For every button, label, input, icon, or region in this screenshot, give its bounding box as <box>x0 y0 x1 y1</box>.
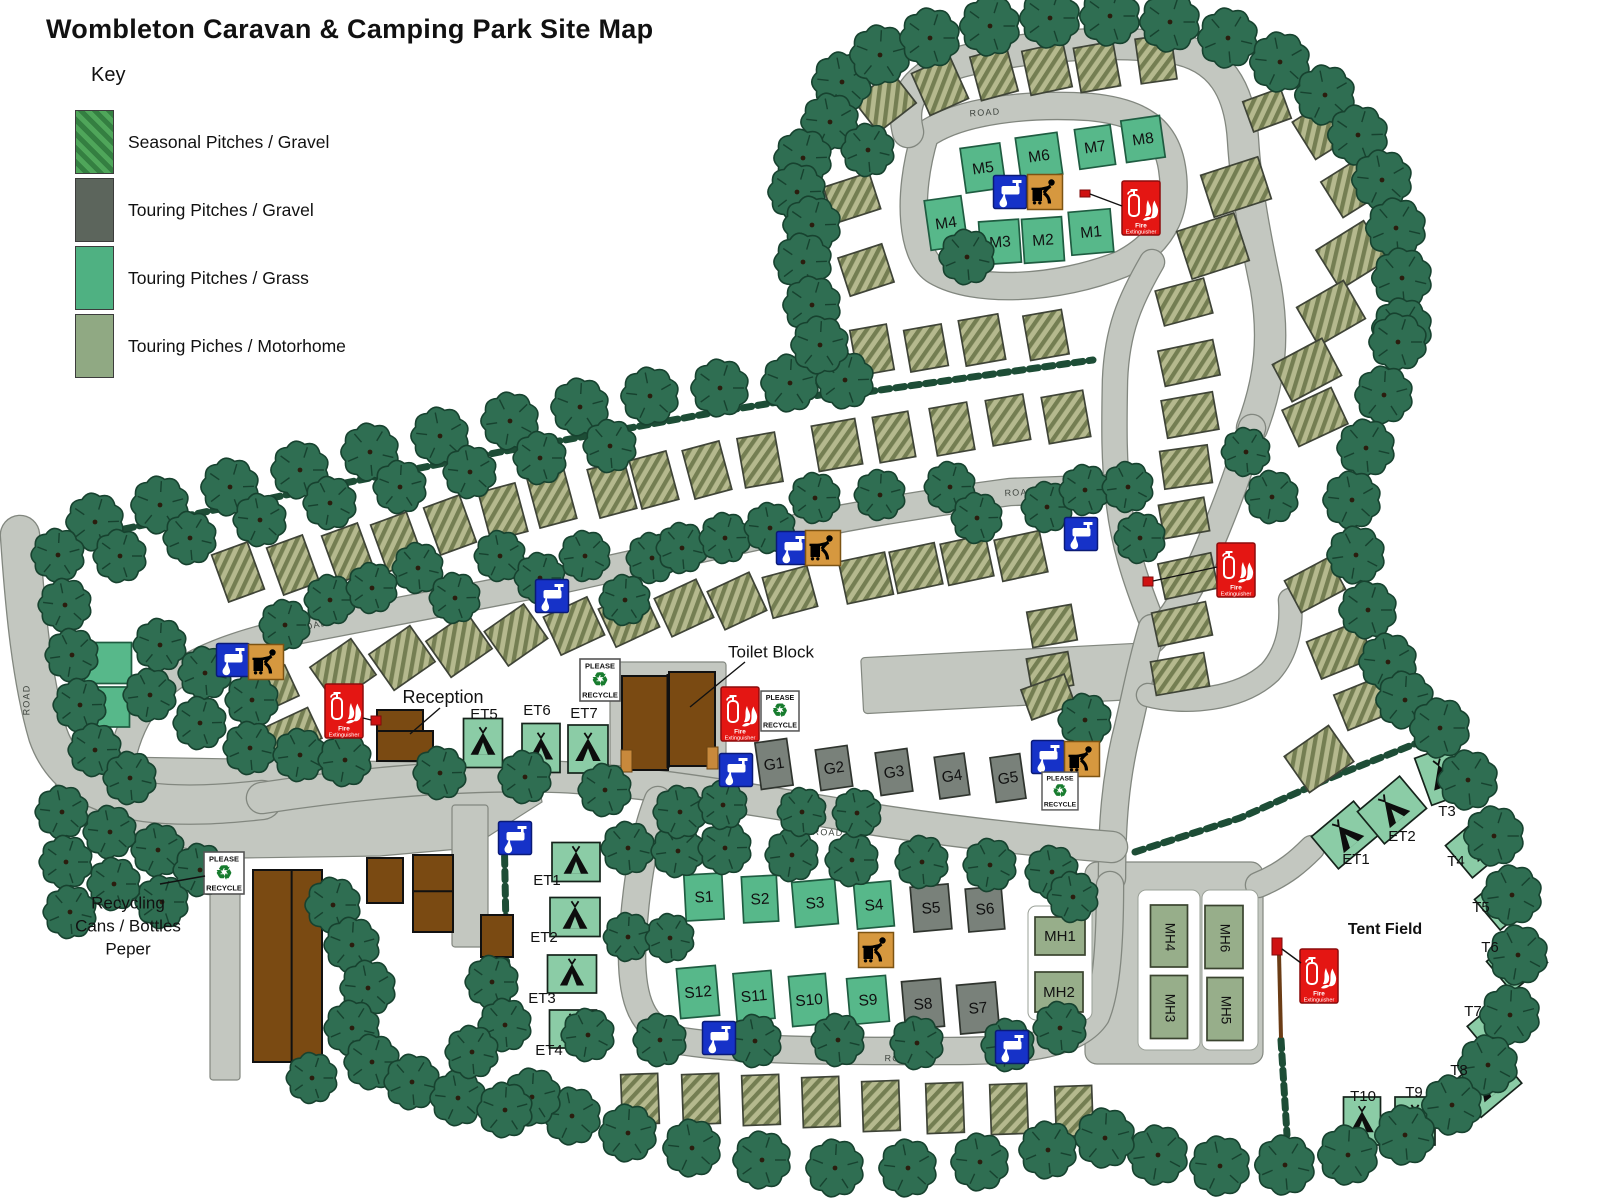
svg-text:MH4: MH4 <box>1162 923 1177 952</box>
fire-extinguisher-sign: FireExtinguisher <box>325 684 363 739</box>
svg-text:RECYCLE: RECYCLE <box>206 883 242 892</box>
pitch-seasonal <box>839 552 894 604</box>
pitch-seasonal <box>1073 41 1120 92</box>
pitch-S4: S4 <box>854 881 895 929</box>
tree <box>951 493 1001 544</box>
key-swatch-grass <box>75 246 114 310</box>
tree <box>1114 513 1164 564</box>
svg-text:S5: S5 <box>921 899 941 918</box>
pitch-seasonal <box>1041 390 1091 444</box>
tree <box>698 781 746 830</box>
tree <box>1337 419 1394 477</box>
tree <box>31 528 84 581</box>
tent-label: ET2 <box>530 929 558 946</box>
fire-extinguisher-sign: FireExtinguisher <box>1122 181 1160 236</box>
svg-text:S10: S10 <box>795 991 824 1010</box>
water-tap-icon <box>1065 518 1098 551</box>
key-item-seasonal: Seasonal Pitches / Gravel <box>75 111 346 173</box>
tree <box>443 445 496 498</box>
pitch-MH1: MH1 <box>1035 917 1085 955</box>
water-tap-icon <box>536 580 569 613</box>
tent-label: T10 <box>1350 1088 1376 1105</box>
tree <box>960 0 1019 56</box>
svg-text:G5: G5 <box>997 769 1020 789</box>
pitch-seasonal <box>904 324 949 372</box>
tree <box>1019 1121 1076 1179</box>
tree <box>45 628 98 681</box>
recycle-sign: PLEASE♻RECYCLE <box>204 852 244 894</box>
svg-text:Fire: Fire <box>1313 991 1325 998</box>
svg-text:Fire: Fire <box>1230 585 1242 592</box>
tree <box>699 513 749 564</box>
pitch-seasonal <box>707 572 766 630</box>
water-tap-icon <box>777 532 810 565</box>
tree <box>103 751 156 804</box>
pitch-seasonal <box>1027 604 1078 647</box>
tree <box>890 1016 943 1069</box>
svg-text:♻: ♻ <box>772 701 788 721</box>
tree <box>559 531 609 582</box>
tree <box>123 668 176 721</box>
tree <box>1033 1001 1086 1054</box>
pitch-M7: M7 <box>1074 125 1115 170</box>
tree <box>939 229 994 284</box>
pitch-S12: S12 <box>676 965 719 1018</box>
pitch-M1: M1 <box>1068 209 1114 255</box>
tree <box>1221 428 1269 477</box>
tree <box>413 746 466 799</box>
waste-point-icon <box>1065 742 1100 777</box>
tree <box>1255 1135 1314 1195</box>
tree <box>963 838 1016 891</box>
tree <box>498 750 551 803</box>
tent-label: T5 <box>1472 899 1490 916</box>
key-swatch-seasonal <box>75 110 114 174</box>
svg-text:S12: S12 <box>684 983 713 1002</box>
pitch-seasonal <box>682 1073 721 1124</box>
svg-text:Extinguisher: Extinguisher <box>1126 230 1157 236</box>
tree <box>133 618 186 671</box>
key-item-gravel: Touring Pitches / Gravel <box>75 179 346 241</box>
pitch-ET5 <box>464 719 503 768</box>
svg-text:♻: ♻ <box>1052 781 1067 800</box>
key-item-grass: Touring Pitches / Grass <box>75 247 346 309</box>
waste-point-icon <box>249 645 284 680</box>
tree <box>811 1013 864 1066</box>
tree <box>854 470 904 521</box>
tent-label: T8 <box>1450 1062 1468 1079</box>
road-area <box>861 642 1160 713</box>
recycle-sign: PLEASE♻RECYCLE <box>1042 772 1078 810</box>
svg-text:S11: S11 <box>740 987 768 1006</box>
label-reception: Reception <box>402 687 483 707</box>
svg-text:S8: S8 <box>913 995 933 1014</box>
pitch-MH6: MH6 <box>1205 906 1243 969</box>
svg-text:M2: M2 <box>1032 231 1055 249</box>
recycle-sign: PLEASE♻RECYCLE <box>761 691 799 731</box>
pitch-seasonal <box>985 394 1030 446</box>
pitch-G2: G2 <box>815 745 852 790</box>
svg-text:MH1: MH1 <box>1044 928 1076 945</box>
svg-text:RECYCLE: RECYCLE <box>582 690 618 699</box>
tree <box>233 493 286 546</box>
page-title: Wombleton Caravan & Camping Park Site Ma… <box>46 14 653 45</box>
water-tap-icon <box>499 822 532 855</box>
tree <box>346 563 396 614</box>
pitch-seasonal <box>682 441 732 499</box>
tree <box>304 575 354 626</box>
pitch-S1: S1 <box>684 873 724 921</box>
tree <box>1355 366 1412 424</box>
callout-line <box>363 718 371 720</box>
pitch-G4: G4 <box>934 753 970 799</box>
pitch-seasonal <box>742 1074 781 1125</box>
pitch-MH4: MH4 <box>1151 905 1188 967</box>
tree <box>825 833 878 886</box>
tree <box>93 529 146 582</box>
pitch-seasonal <box>1155 278 1213 326</box>
tree <box>691 359 748 417</box>
building-step <box>707 747 718 769</box>
svg-text:S7: S7 <box>968 999 988 1018</box>
pitch-seasonal <box>926 1082 965 1133</box>
tree <box>38 578 91 631</box>
key-swatch-motorhome <box>75 314 114 378</box>
pitch-seasonal <box>1161 392 1219 438</box>
svg-text:S1: S1 <box>694 889 714 907</box>
pitch-seasonal <box>889 543 943 594</box>
waste-point-icon <box>1028 175 1063 210</box>
tree <box>1245 470 1298 523</box>
building-step <box>621 750 632 772</box>
label-recycling: Peper <box>105 939 151 958</box>
tree <box>1318 1125 1377 1185</box>
water-tap-icon <box>1032 741 1065 774</box>
svg-text:RECYCLE: RECYCLE <box>1044 802 1077 809</box>
tree <box>273 728 326 781</box>
water-tap-icon <box>217 644 250 677</box>
water-tap-icon <box>996 1031 1029 1064</box>
pitch-S2: S2 <box>741 875 778 923</box>
tree <box>765 828 818 881</box>
pitch-MH3: MH3 <box>1151 976 1188 1039</box>
site-map: ROADROADROADROADROADROADG1G2G3G4G5S5S6S7… <box>0 0 1600 1200</box>
tree <box>303 476 356 529</box>
pitch-S6: S6 <box>965 886 1005 932</box>
pitch-seasonal <box>484 604 547 666</box>
svg-text:MH2: MH2 <box>1043 984 1075 1001</box>
svg-text:G3: G3 <box>883 763 906 783</box>
tree <box>806 1139 863 1197</box>
svg-text:MH6: MH6 <box>1217 924 1232 953</box>
fire-extinguisher-sign: FireExtinguisher <box>1217 543 1255 598</box>
pitch-seasonal <box>958 314 1005 366</box>
pitch-G5: G5 <box>990 754 1026 803</box>
tree <box>163 511 216 564</box>
equipment-marker <box>1272 938 1282 955</box>
svg-text:S3: S3 <box>805 894 825 913</box>
pitch-seasonal <box>1022 43 1072 96</box>
pitch-seasonal <box>990 1083 1029 1134</box>
building <box>481 915 513 957</box>
tree <box>645 914 693 963</box>
key-swatch-gravel <box>75 178 114 242</box>
pitch-seasonal <box>862 1080 901 1131</box>
svg-text:Fire: Fire <box>1135 223 1147 230</box>
tree <box>1339 581 1396 639</box>
tree <box>832 789 880 838</box>
tree <box>656 523 706 574</box>
tent-label: ET2 <box>1388 828 1416 845</box>
water-tap-icon <box>720 754 753 787</box>
tree <box>733 1131 790 1189</box>
fire-extinguisher-sign: FireExtinguisher <box>1300 949 1338 1004</box>
tree <box>318 733 371 786</box>
pitch-seasonal <box>1160 445 1213 489</box>
tent-label: T3 <box>1438 803 1456 820</box>
tree <box>1128 1125 1187 1185</box>
pitch-MH5: MH5 <box>1207 978 1243 1041</box>
pitch-seasonal <box>762 566 817 618</box>
callout-line <box>1090 194 1122 206</box>
tree <box>601 821 654 874</box>
svg-text:S4: S4 <box>864 896 885 915</box>
pitch-G3: G3 <box>875 748 913 795</box>
tree <box>1327 526 1384 584</box>
tree <box>35 785 88 838</box>
svg-text:♻: ♻ <box>215 863 232 884</box>
tree <box>1058 693 1111 746</box>
pitch-seasonal <box>426 613 492 678</box>
tree <box>879 1139 936 1197</box>
svg-text:G2: G2 <box>823 759 846 779</box>
tree <box>777 788 825 837</box>
key-heading: Key <box>91 64 346 87</box>
pitch-ET3 <box>548 955 597 993</box>
tree <box>225 673 278 726</box>
tree <box>1410 698 1469 758</box>
label-recycling: Recycling <box>91 893 165 912</box>
pitch-seasonal <box>737 432 783 488</box>
equipment-marker <box>371 716 381 725</box>
tree <box>789 473 839 524</box>
building <box>367 858 403 903</box>
tree <box>1102 462 1152 513</box>
hedge <box>1281 1040 1287 1135</box>
pitch-seasonal <box>1158 553 1218 599</box>
pitch-seasonal <box>940 535 994 586</box>
road-label: ROAD <box>21 685 31 716</box>
hedge <box>866 360 1093 392</box>
svg-text:M4: M4 <box>934 214 958 234</box>
tree <box>791 316 848 374</box>
svg-text:♻: ♻ <box>591 670 608 691</box>
tree <box>1047 872 1097 923</box>
key-item-label: Touring Piches / Motorhome <box>128 336 346 357</box>
pitch-M8: M8 <box>1121 115 1165 162</box>
pitch-seasonal <box>872 411 915 463</box>
svg-text:G4: G4 <box>941 767 964 787</box>
tent-label: ET4 <box>535 1042 563 1059</box>
pitch-S11: S11 <box>733 970 775 1021</box>
map-key: Key Seasonal Pitches / Gravel Touring Pi… <box>75 64 346 383</box>
tree <box>841 123 894 176</box>
key-item-label: Touring Pitches / Grass <box>128 268 309 289</box>
label-toilet_block: Toilet Block <box>728 642 814 661</box>
tent-label: T4 <box>1447 853 1465 870</box>
tent-label: ET6 <box>523 702 551 719</box>
tree <box>286 1053 336 1104</box>
tree <box>1323 471 1380 529</box>
tent-label: ET7 <box>570 705 598 722</box>
tree <box>621 367 678 425</box>
svg-text:M1: M1 <box>1080 223 1103 242</box>
svg-text:M8: M8 <box>1131 130 1155 150</box>
water-tap-icon <box>703 1022 736 1055</box>
svg-text:S2: S2 <box>750 891 770 909</box>
tree <box>599 1104 656 1162</box>
pitch-seasonal <box>802 1076 841 1127</box>
tree <box>578 763 631 816</box>
tent-label: T6 <box>1481 939 1499 956</box>
tree <box>477 1082 532 1137</box>
tree <box>633 1013 686 1066</box>
svg-text:Extinguisher: Extinguisher <box>329 733 360 739</box>
tree <box>895 835 948 888</box>
svg-text:G1: G1 <box>763 755 786 775</box>
pitch-seasonal <box>1158 497 1209 538</box>
fence-post <box>1279 953 1281 1038</box>
callout-line <box>1282 949 1301 963</box>
svg-text:S6: S6 <box>975 900 995 919</box>
tree <box>39 835 92 888</box>
equipment-marker <box>1143 577 1153 586</box>
pitch-M2: M2 <box>1022 217 1065 264</box>
svg-text:Fire: Fire <box>734 729 746 736</box>
recycle-sign: PLEASE♻RECYCLE <box>580 659 620 701</box>
tent-label: T7 <box>1464 1003 1482 1020</box>
svg-text:MH3: MH3 <box>1162 994 1177 1023</box>
pitch-S5: S5 <box>910 884 952 932</box>
key-item-label: Seasonal Pitches / Gravel <box>128 132 329 153</box>
pitch-seasonal <box>811 419 862 472</box>
tree <box>603 913 651 962</box>
svg-text:M7: M7 <box>1083 138 1107 158</box>
pitch-seasonal <box>838 244 894 296</box>
svg-text:MH5: MH5 <box>1218 996 1233 1025</box>
pitch-S10: S10 <box>788 973 829 1026</box>
svg-text:S9: S9 <box>858 991 878 1010</box>
tree <box>223 721 276 774</box>
tree <box>1375 1105 1434 1165</box>
pitch-seasonal <box>1284 725 1353 792</box>
tree <box>373 460 426 513</box>
tent-label: ET1 <box>533 872 561 889</box>
pitch-M6: M6 <box>1015 132 1062 179</box>
tree <box>653 785 706 838</box>
tree <box>513 431 566 484</box>
tree <box>1464 806 1523 866</box>
pitch-seasonal <box>1023 309 1069 360</box>
tree <box>1369 313 1426 371</box>
tree <box>173 696 226 749</box>
svg-text:M6: M6 <box>1027 147 1051 167</box>
tree <box>1482 865 1541 925</box>
svg-text:RECYCLE: RECYCLE <box>763 722 797 730</box>
pitch-seasonal <box>1297 280 1366 345</box>
tree <box>900 8 959 68</box>
tree <box>430 1070 485 1125</box>
pitch-seasonal <box>212 542 265 602</box>
tent-label: ET5 <box>470 706 498 723</box>
svg-text:Fire: Fire <box>338 726 350 733</box>
tree <box>445 1025 498 1078</box>
tree <box>1198 8 1257 68</box>
tree <box>429 573 479 624</box>
building <box>413 855 453 932</box>
svg-text:Extinguisher: Extinguisher <box>1304 998 1335 1004</box>
label-tent_field: Tent Field <box>1348 921 1422 938</box>
key-item-motorhome: Touring Piches / Motorhome <box>75 315 346 377</box>
pitch-G1: G1 <box>755 739 793 790</box>
svg-text:Extinguisher: Extinguisher <box>1221 592 1252 598</box>
key-item-label: Touring Pitches / Gravel <box>128 200 314 221</box>
pitch-seasonal <box>629 451 679 509</box>
waste-point-icon <box>859 933 894 968</box>
road <box>1258 848 1312 885</box>
pitch-seasonal <box>1158 340 1220 387</box>
pitch-seasonal <box>369 626 435 691</box>
label-recycling: Cans / Bottles <box>75 916 181 935</box>
tent-label: ET1 <box>1342 851 1370 868</box>
tree <box>561 1008 614 1061</box>
svg-text:M5: M5 <box>971 159 995 179</box>
pitch-seasonal <box>654 579 713 637</box>
tree <box>599 575 649 626</box>
pitch-seasonal <box>929 402 975 456</box>
pitch-S3: S3 <box>792 879 839 928</box>
waste-point-icon <box>806 531 841 566</box>
tree <box>259 600 309 651</box>
tent-label: T9 <box>1405 1084 1423 1101</box>
tree <box>1075 1108 1134 1168</box>
tree <box>583 419 636 472</box>
tree <box>951 1133 1008 1191</box>
tree <box>1438 750 1497 810</box>
pitch-seasonal <box>994 531 1048 582</box>
tree <box>698 821 751 874</box>
tree <box>1190 1136 1249 1196</box>
svg-text:Extinguisher: Extinguisher <box>725 736 756 742</box>
tree <box>663 1119 720 1177</box>
fire-extinguisher-sign: FireExtinguisher <box>721 687 759 742</box>
tent-label: ET3 <box>528 990 556 1007</box>
equipment-marker <box>1080 190 1090 197</box>
tree <box>53 678 106 731</box>
water-tap-icon <box>994 176 1027 209</box>
